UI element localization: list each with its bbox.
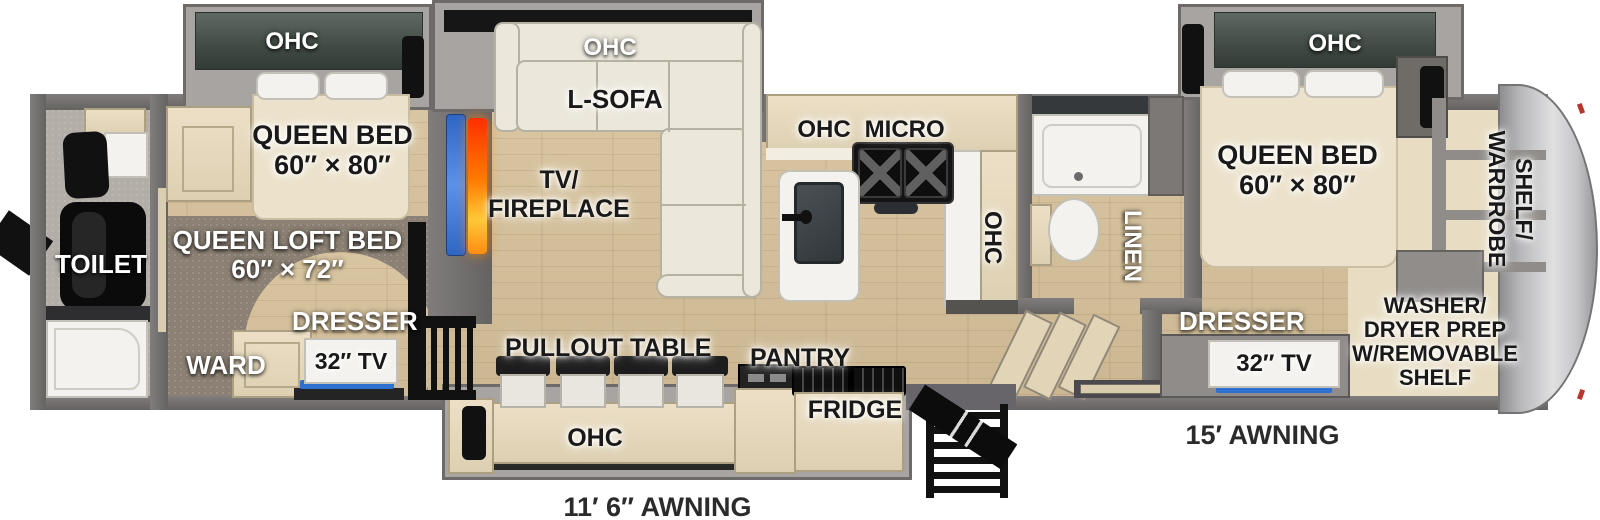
dinette-chair bbox=[618, 374, 664, 408]
awning-front-label: 15′ AWNING bbox=[1180, 420, 1345, 451]
shelf-wardrobe-label: SHELF/ WARDROBE bbox=[1481, 114, 1537, 284]
kitchen-micro-label: MICRO bbox=[865, 116, 945, 144]
pullout-table-label: PULLOUT TABLE bbox=[505, 334, 710, 363]
fridge-label: FRIDGE bbox=[803, 396, 907, 425]
washer-line3: W/REMOVABLE bbox=[1352, 342, 1518, 366]
sofa-right-back bbox=[742, 22, 762, 298]
bunk-tv-shelf bbox=[294, 388, 404, 400]
rv-floorplan: 32″ TV bbox=[0, 0, 1600, 520]
bunk-bed-line2: 60″ × 80″ bbox=[240, 150, 425, 180]
washer-dryer-label: WASHER/ DRYER PREP W/REMOVABLE SHELF bbox=[1352, 294, 1518, 390]
kitchen-sink bbox=[794, 182, 844, 264]
bunk-wardrobe-panel bbox=[182, 126, 234, 192]
rear-bath-sink bbox=[62, 131, 109, 199]
stove-grate bbox=[858, 148, 902, 198]
sofa-seam bbox=[662, 204, 746, 206]
bedroom-slide-window bbox=[1182, 24, 1204, 94]
faucet-head bbox=[800, 210, 812, 224]
entry-step-rung bbox=[932, 472, 1002, 479]
tv-fireplace-line2: FIREPLACE bbox=[488, 195, 630, 224]
stove-grate bbox=[904, 148, 948, 198]
front-pillow-left bbox=[1222, 70, 1300, 98]
front-pillow-right bbox=[1304, 70, 1384, 98]
tv-fireplace-line1: TV/ bbox=[488, 166, 630, 195]
kitchen-ohc-label: OHC bbox=[797, 116, 850, 144]
pantry-label: PANTRY bbox=[748, 344, 852, 373]
front-dresser-label: DRESSER bbox=[1179, 306, 1301, 337]
railing-baluster bbox=[443, 326, 449, 392]
front-bed-line1: QUEEN BED bbox=[1200, 140, 1395, 170]
ohc-micro-label: OHC MICRO bbox=[786, 116, 956, 144]
kitchen-faucet bbox=[782, 214, 804, 221]
linen-label: LINEN bbox=[1114, 196, 1146, 296]
bunk-pillow-left bbox=[256, 72, 320, 100]
shower-drain bbox=[1074, 172, 1083, 181]
bunk-pillow-right bbox=[324, 72, 388, 100]
cap-marker-top bbox=[1577, 103, 1585, 114]
bunk-ohc-label: OHC bbox=[252, 28, 332, 56]
l-sofa-label: L-SOFA bbox=[560, 84, 670, 115]
washer-line2: DRYER PREP bbox=[1352, 318, 1518, 342]
loft-bed-line1: QUEEN LOFT BED bbox=[170, 226, 405, 255]
front-bed-line2: 60″ × 80″ bbox=[1200, 170, 1395, 200]
front-tv-label: 32″ TV bbox=[1210, 342, 1338, 386]
stove-hood-knob bbox=[874, 202, 918, 214]
bunk-bed-line1: QUEEN BED bbox=[240, 120, 425, 150]
kitchen-ohc-vertical-label: OHC bbox=[974, 200, 1006, 276]
awning-main-label: 11′ 6″ AWNING bbox=[540, 492, 775, 520]
dinette-chair bbox=[500, 374, 546, 408]
mid-bath-shower bbox=[1032, 114, 1150, 196]
loft-bed-label: QUEEN LOFT BED 60″ × 72″ bbox=[170, 226, 405, 284]
tv-fireplace-label: TV/ FIREPLACE bbox=[488, 166, 630, 224]
toilet-label: TOILET bbox=[36, 249, 166, 280]
bunk-tv-box: 32″ TV bbox=[304, 338, 398, 384]
pantry-body bbox=[734, 388, 796, 474]
sofa-chaise bbox=[660, 128, 748, 284]
shower-tray bbox=[1042, 124, 1142, 188]
dinette-chair bbox=[560, 374, 606, 408]
railing-baluster bbox=[455, 326, 461, 392]
washer-line4: SHELF bbox=[1352, 366, 1518, 390]
bedroom-ohc-label: OHC bbox=[1295, 30, 1375, 58]
rear-bath-counter bbox=[104, 132, 148, 178]
shelf-wardrobe-line1: SHELF/ bbox=[1510, 114, 1537, 284]
dinette-corner-opening bbox=[462, 406, 486, 460]
mid-bath-cabinet bbox=[1148, 96, 1184, 196]
loft-bed-line2: 60″ × 72″ bbox=[170, 255, 405, 284]
railing-baluster bbox=[467, 326, 473, 392]
cap-marker-bottom bbox=[1577, 389, 1585, 400]
pantry-handle bbox=[770, 374, 786, 382]
fireplace-strip bbox=[468, 118, 487, 254]
kitchen-counter-base bbox=[946, 300, 1018, 314]
pantry-handle bbox=[748, 374, 764, 382]
ward-label: WARD bbox=[180, 350, 272, 381]
mid-bath-mirror bbox=[1032, 96, 1150, 116]
entry-step-rung bbox=[932, 486, 1002, 493]
bunk-dresser-label: DRESSER bbox=[292, 306, 417, 337]
loft-railing bbox=[426, 316, 476, 400]
shelf-wardrobe-line2: WARDROBE bbox=[1483, 114, 1510, 284]
bunk-tv-label: 32″ TV bbox=[306, 340, 396, 382]
front-tv-box: 32″ TV bbox=[1208, 340, 1340, 388]
bunk-bed-label: QUEEN BED 60″ × 80″ bbox=[240, 120, 425, 180]
dinette-chair bbox=[676, 374, 724, 408]
rear-shower-tray bbox=[54, 328, 140, 390]
rear-shower bbox=[46, 320, 148, 398]
bunk-slide-window bbox=[402, 36, 424, 98]
washer-line1: WASHER/ bbox=[1352, 294, 1518, 318]
dinette-ohc-label: OHC bbox=[553, 424, 637, 453]
front-bed-label: QUEEN BED 60″ × 80″ bbox=[1200, 140, 1395, 200]
kitchen-stove bbox=[852, 142, 954, 204]
mid-toilet-bowl bbox=[1048, 198, 1100, 262]
sofa-ohc-label: OHC bbox=[572, 34, 648, 62]
tv-screen-strip bbox=[446, 114, 466, 256]
railing-baluster bbox=[431, 326, 437, 392]
